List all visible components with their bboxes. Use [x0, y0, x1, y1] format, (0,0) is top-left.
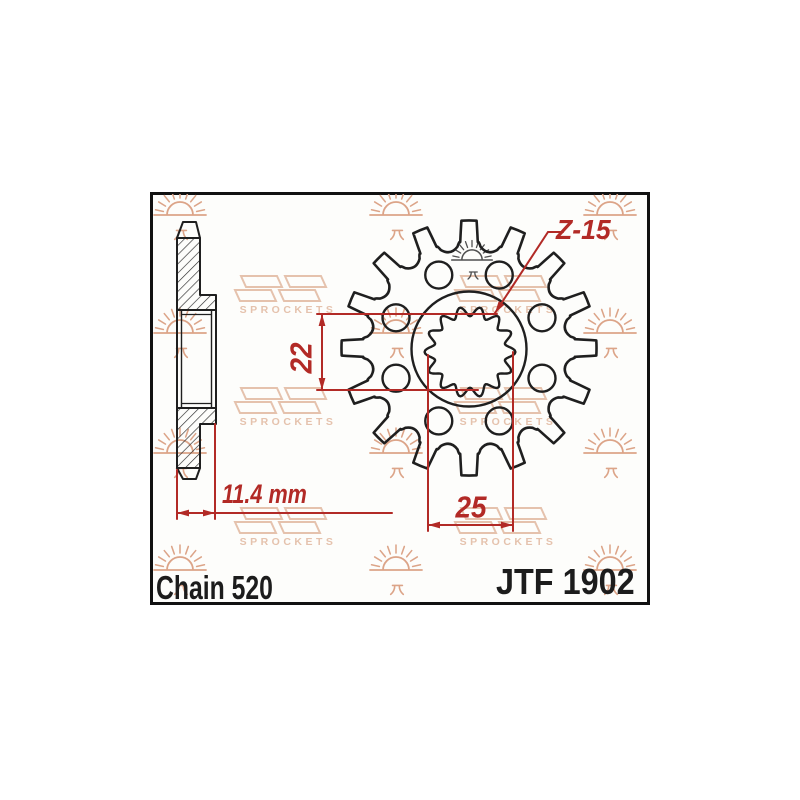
drawing-canvas: SPROCKETSSPROCKETSSPROCKETSSPROCKETSSPRO… — [0, 0, 800, 800]
dim-bore-across-flats-label: 22 — [286, 342, 317, 373]
svg-text:SPROCKETS: SPROCKETS — [240, 416, 337, 428]
chain-spec-label: Chain 520 — [156, 571, 273, 604]
sprocket-front-view — [341, 220, 596, 475]
svg-text:SPROCKETS: SPROCKETS — [460, 536, 557, 548]
dim-hub-thickness-label: 11.4 mm — [222, 481, 307, 508]
sprocket-technical-drawing: SPROCKETSSPROCKETSSPROCKETSSPROCKETSSPRO… — [0, 0, 800, 800]
dim-bore-outer-label: 25 — [455, 492, 486, 523]
svg-text:SPROCKETS: SPROCKETS — [240, 536, 337, 548]
dim-teeth-count-label: Z-15 — [556, 216, 611, 244]
svg-text:SPROCKETS: SPROCKETS — [460, 416, 557, 428]
part-number-label: JTF 1902 — [496, 564, 635, 600]
